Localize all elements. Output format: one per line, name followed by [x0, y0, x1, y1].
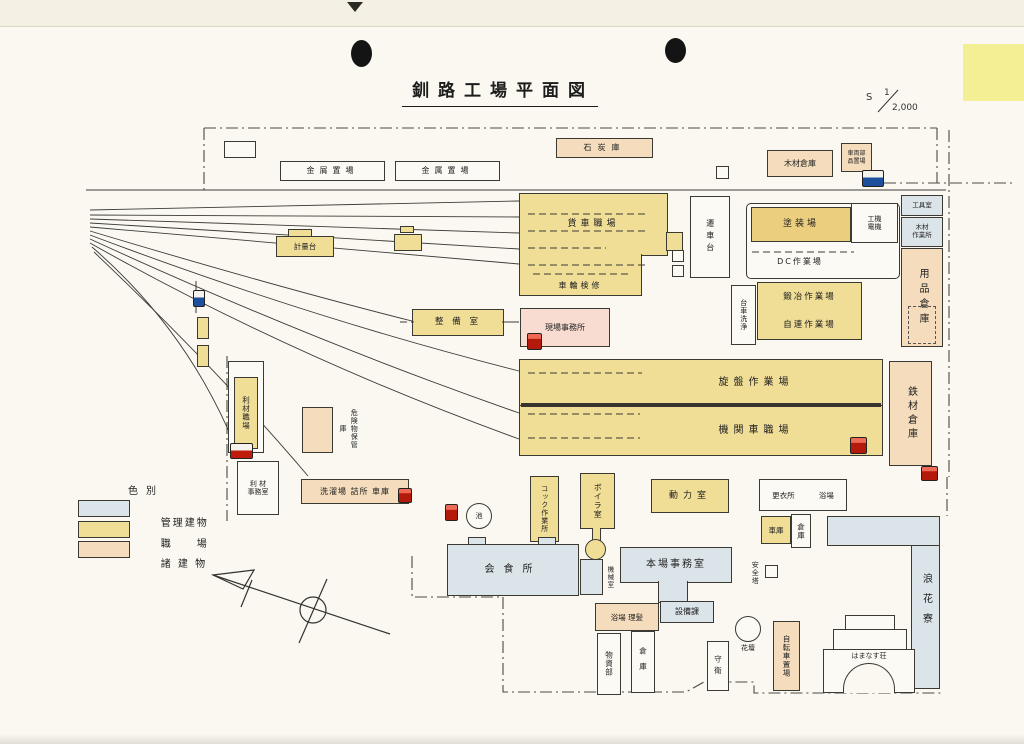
building-coal-shed: 石炭庫	[556, 138, 653, 158]
building-machine-room	[580, 559, 603, 595]
building-facilities-section: 設備課	[660, 601, 714, 623]
hamanasu-label: はまなす荘	[823, 651, 915, 661]
building-cock-workshop: コック作業所	[530, 476, 559, 542]
building-salvage-office: 利 材 事務室	[237, 461, 279, 515]
building-bath-barber: 浴場 理髪	[595, 603, 659, 631]
building-vehicle-parts-store: 車両部 品置場	[841, 143, 872, 172]
building-warehouse-b: 倉庫	[791, 514, 811, 548]
building-freight-car-shop: 貨車職場	[519, 193, 668, 256]
forge-shop-label: 鍛冶作業場	[783, 292, 836, 302]
small-shed	[394, 234, 422, 251]
building-laundry-row: 洗濯場 詰所 車庫	[301, 479, 409, 504]
small-box	[672, 250, 684, 262]
building-wood-workshop: 木材 作業所	[901, 217, 943, 247]
building-goods-dept: 物資部	[597, 633, 621, 695]
building-changing-bath: 更衣所 浴場	[759, 479, 847, 511]
building-bogie-washing: 台車洗浄	[731, 285, 756, 345]
flower-bed	[735, 616, 761, 642]
building-guard-post: 守衛	[707, 641, 729, 691]
hydrant-marker	[850, 437, 867, 454]
building-forge-coupler: 鍛冶作業場 自連作業場	[757, 282, 862, 340]
freight-shop-annex	[666, 232, 683, 251]
hydrant-marker	[230, 443, 253, 459]
paper-mark	[347, 2, 363, 12]
building-wheel-inspection: 車輪検修	[519, 254, 642, 296]
scale-denominator: 2,000	[892, 103, 918, 113]
changing-room-label: 更衣所	[772, 491, 795, 500]
punch-hole	[351, 40, 372, 67]
building-maintenance-room: 整 備 室	[412, 309, 504, 336]
punch-hole	[665, 38, 686, 63]
hydrant-marker	[445, 504, 458, 521]
building-warehouse: 倉庫	[631, 631, 655, 693]
legend-title: 色別	[128, 482, 164, 497]
building-bicycle-parking: 自転車置場	[773, 621, 800, 691]
hazmat-storage-label: 危険物保管庫	[334, 408, 362, 450]
building-scrap-yard: 金屑置場	[280, 161, 385, 181]
building-main-office: 本場事務室	[620, 547, 732, 583]
safety-tower-label: 安全塔	[749, 555, 761, 591]
scanned-factory-plan: 釧路工場平面図 S 1 2,000	[0, 0, 1024, 744]
legend-swatch-misc	[78, 541, 130, 558]
water-marker	[862, 170, 884, 187]
building-garage: 車庫	[761, 516, 791, 544]
safety-tower	[765, 565, 778, 578]
scale-prefix: S	[866, 92, 872, 103]
legend-swatch-workshop	[78, 521, 130, 538]
coupler-shop-label: 自連作業場	[783, 320, 836, 330]
small-shed-roof	[400, 226, 414, 233]
small-structure	[224, 141, 256, 158]
scale-note: S 1 2,000	[866, 92, 872, 103]
north-arrow	[213, 570, 390, 643]
building-boiler-room: ボイラ室	[580, 473, 615, 529]
small-box	[716, 166, 729, 179]
building-steel-warehouse: 鉄材倉庫	[889, 361, 932, 466]
shop-divider-wall	[521, 403, 881, 407]
small-box	[197, 345, 209, 367]
machine-room-label: 機械室	[603, 560, 615, 594]
building-paint-shop: 塗装場	[751, 207, 851, 242]
building-power-room: 動力室	[651, 479, 729, 513]
building-wood-warehouse: 木材倉庫	[767, 150, 833, 177]
building-machine-electric: 工機 電機	[851, 203, 898, 243]
building-metal-yard: 金属置場	[395, 161, 500, 181]
page-title: 釧路工場平面図	[402, 76, 598, 107]
building-hazmat-storage	[302, 407, 333, 453]
building-weighbridge: 計量台	[276, 236, 334, 257]
scale-numerator: 1	[884, 88, 890, 98]
boiler-chimney	[585, 539, 606, 560]
sticky-tab	[963, 44, 1024, 101]
dc-shop-label: DC作業場	[755, 256, 845, 268]
hydrant-marker	[527, 333, 542, 350]
bath-house-label: 浴場	[819, 491, 834, 500]
building-dining-hall: 会食所	[447, 544, 579, 596]
paper-edge	[0, 0, 1024, 27]
naniwa-dorm-wing	[827, 516, 940, 546]
building-lathe-shop: 旋盤作業場	[519, 359, 883, 406]
supplies-warehouse-annex	[908, 306, 936, 344]
main-office-wing	[658, 581, 688, 603]
building-salvage-shop: 利材職場	[234, 377, 258, 449]
building-tool-room: 工具室	[901, 195, 943, 216]
hydrant-marker	[921, 466, 938, 481]
legend-swatch-management	[78, 500, 130, 517]
small-box	[672, 265, 684, 277]
small-box	[197, 317, 209, 339]
pond: 池	[466, 503, 492, 529]
building-traverser: 遷車台	[690, 196, 730, 278]
legend-label-misc: 諸 建 物	[140, 544, 207, 570]
flower-bed-label: 花壇	[731, 643, 765, 653]
building-locomotive-shop: 機関車職場	[519, 406, 883, 456]
hydrant-marker	[398, 488, 412, 503]
water-marker	[193, 290, 205, 307]
